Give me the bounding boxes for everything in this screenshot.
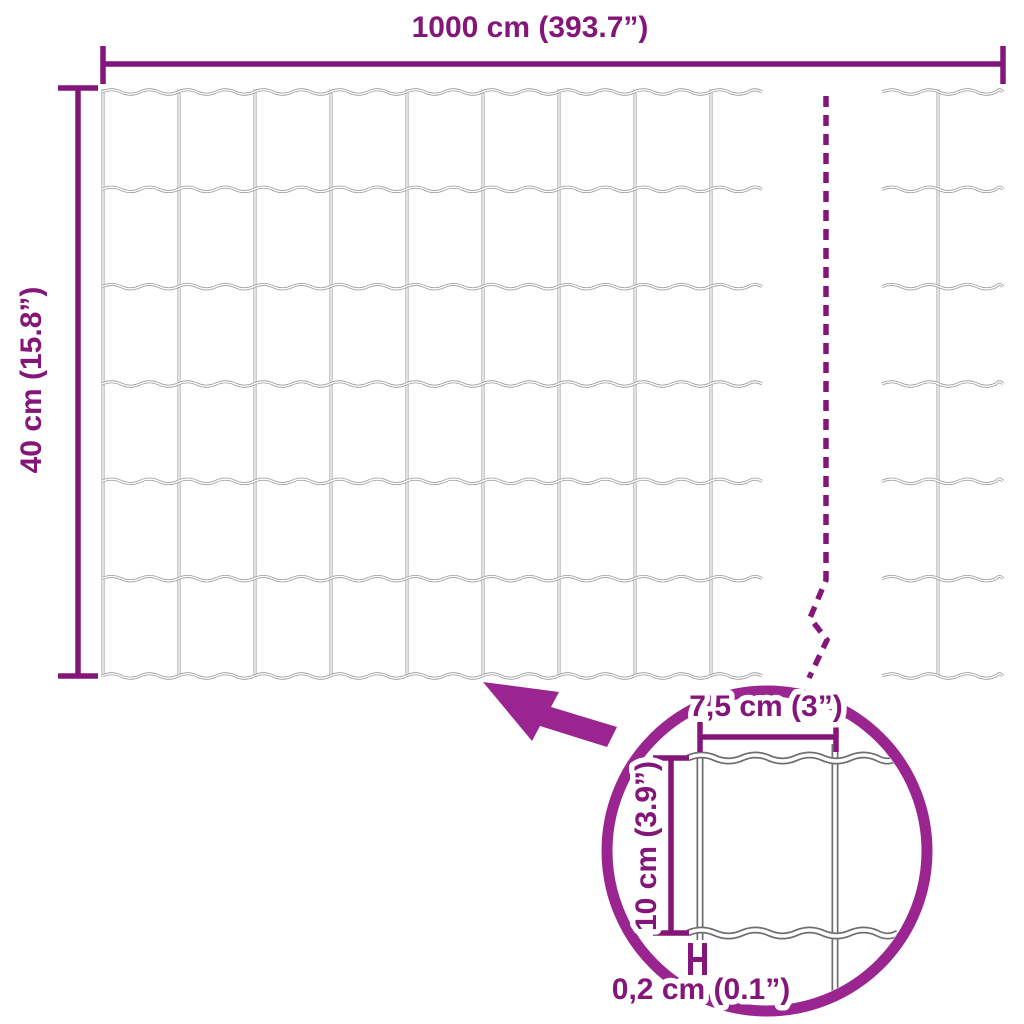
detail-mesh — [688, 744, 898, 1005]
total-height-label: 40 cm (15.8”) — [15, 287, 48, 474]
total-width-dimension: 1000 cm (393.7”) — [103, 11, 1003, 84]
mesh-height-label: 10 cm (3.9”) — [630, 761, 663, 931]
total-width-label: 1000 cm (393.7”) — [412, 11, 649, 44]
wire-thickness-marker — [691, 943, 705, 975]
mesh-width-dimension-line — [700, 722, 836, 752]
fence-continuation-break-line — [809, 96, 827, 678]
total-height-dimension: 40 cm (15.8”) — [15, 88, 98, 677]
total-width-dimension-line — [103, 46, 1003, 84]
wire-thickness-label: 0,2 cm (0.1”) — [612, 973, 790, 1006]
fence-mesh — [102, 89, 762, 678]
product-dimension-image: 1000 cm (393.7”) 40 cm (15.8”) 7,5 cm (3… — [0, 0, 1024, 1024]
fence-mesh-continued — [882, 89, 1003, 678]
zoom-detail-view: 7,5 cm (3”) 10 cm (3.9”) 0,2 cm (0.1”) — [607, 690, 927, 1011]
dimension-diagram: 1000 cm (393.7”) 40 cm (15.8”) 7,5 cm (3… — [0, 0, 1024, 1024]
zoom-arrow-icon — [483, 682, 617, 747]
total-height-dimension-line — [58, 88, 98, 677]
mesh-width-label: 7,5 cm (3”) — [689, 690, 842, 723]
